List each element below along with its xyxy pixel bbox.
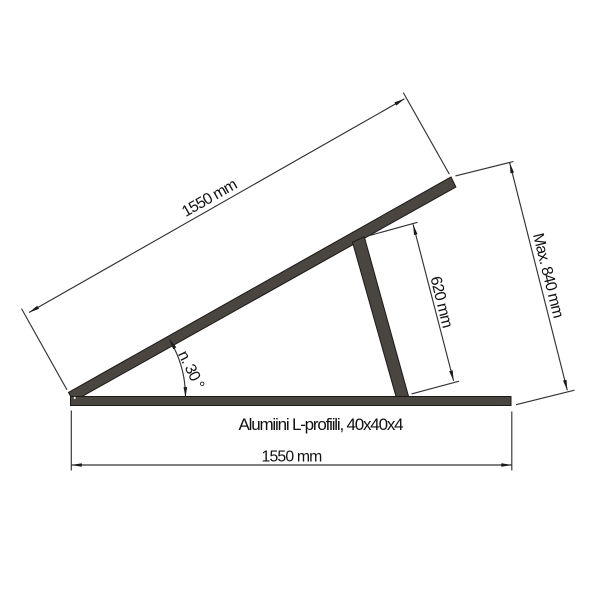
- svg-text:1550 mm: 1550 mm: [262, 449, 323, 466]
- svg-text:Alumiini L-profiili, 40x40x4: Alumiini L-profiili, 40x40x4: [239, 415, 404, 434]
